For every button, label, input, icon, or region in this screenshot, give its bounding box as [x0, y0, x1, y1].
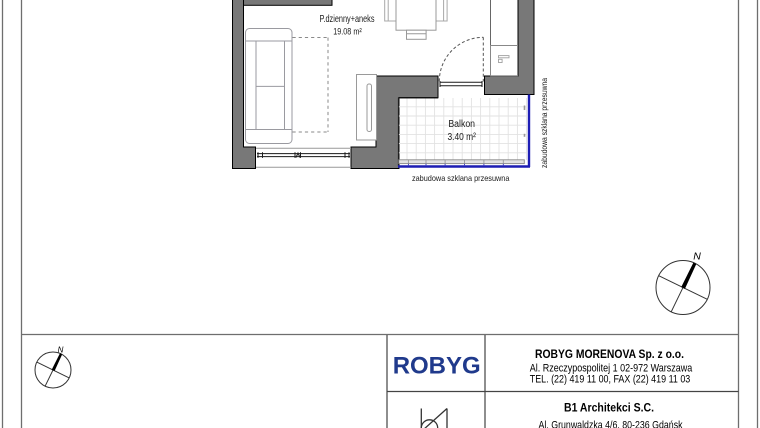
svg-text:Balkon: Balkon [448, 119, 475, 130]
svg-text:ROBYG: ROBYG [393, 352, 481, 379]
svg-text:ROBYG MORENOVA Sp. z o.o.: ROBYG MORENOVA Sp. z o.o. [535, 348, 684, 361]
svg-text:P.dzienny+aneks: P.dzienny+aneks [320, 14, 375, 25]
svg-text:zabudowa szklana przesuwna: zabudowa szklana przesuwna [540, 78, 549, 168]
svg-text:B1 Architekci S.C.: B1 Architekci S.C. [564, 401, 654, 415]
svg-text:19.08 m²: 19.08 m² [333, 27, 362, 37]
svg-text:TEL. (22) 419 11 00, FAX (22): TEL. (22) 419 11 00, FAX (22) 419 11 03 [530, 374, 691, 386]
svg-text:zabudowa szklana przesuwna: zabudowa szklana przesuwna [412, 173, 510, 183]
svg-text:3.40 m²: 3.40 m² [447, 132, 476, 143]
svg-text:N: N [693, 251, 701, 263]
svg-text:Al. Grunwaldzka 4/6, 80-236 Gd: Al. Grunwaldzka 4/6, 80-236 Gdańsk [539, 420, 683, 428]
svg-text:N: N [58, 346, 64, 355]
